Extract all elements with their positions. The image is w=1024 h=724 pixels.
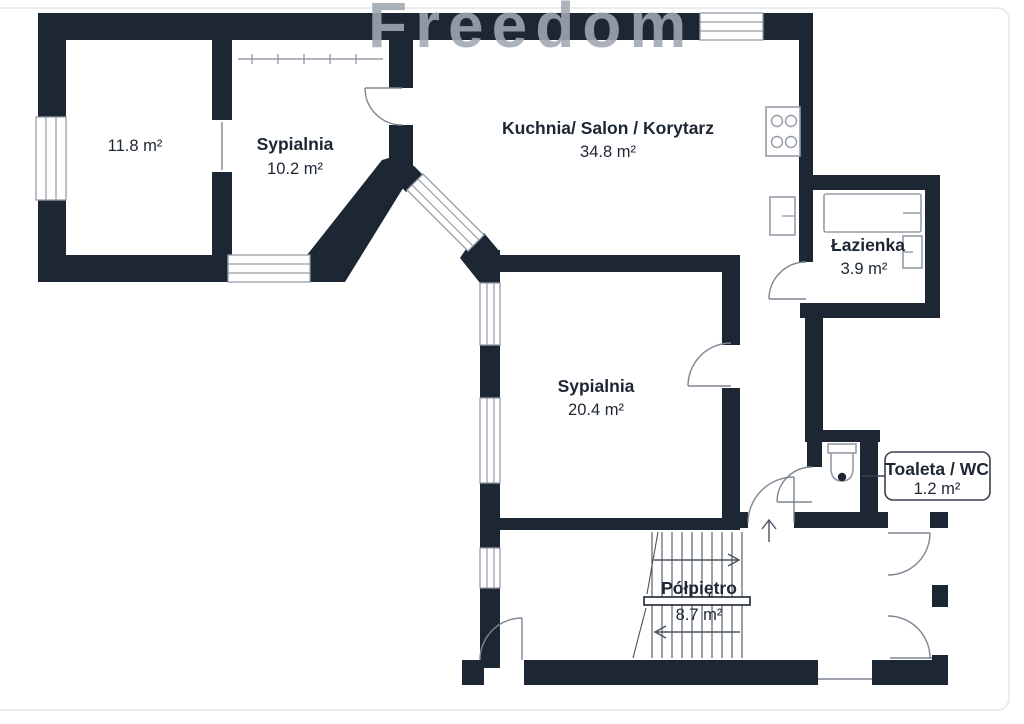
label-bathroom-name: Łazienka xyxy=(831,235,905,255)
wall-bedroom-big-left-c xyxy=(480,483,500,548)
wall-room-divider-top xyxy=(212,40,232,120)
toilet-icon xyxy=(828,444,856,481)
kitchen-sink-icon xyxy=(770,197,795,235)
label-kitchen-name: Kuchnia/ Salon / Korytarz xyxy=(502,118,714,138)
window-left xyxy=(36,117,66,200)
wall-wc-left xyxy=(807,442,822,467)
door-bathroom xyxy=(769,262,806,299)
bathtub-icon xyxy=(824,194,921,232)
window-diagonal xyxy=(407,174,484,251)
window-bedroom-big-1 xyxy=(480,283,500,345)
wall-wc-top xyxy=(807,430,880,442)
door-bedroom-small xyxy=(365,88,402,125)
wall-landing-top-b xyxy=(794,512,888,528)
label-room-left-area: 11.8 m² xyxy=(108,137,163,155)
door-neighbor-bottom xyxy=(888,616,932,658)
wall-bathroom-top xyxy=(813,175,940,190)
label-toilet-name: Toaleta / WC xyxy=(885,459,989,479)
wall-bathroom-right xyxy=(925,190,940,318)
door-neighbor-top xyxy=(888,533,930,575)
wall-bathroom-bottom xyxy=(800,303,940,318)
closet-line xyxy=(238,54,383,64)
wall-bathroom-left xyxy=(799,185,813,262)
label-bathroom-area: 3.9 m² xyxy=(841,260,888,278)
window-bottom-left xyxy=(228,255,310,282)
window-bedroom-big-2 xyxy=(480,398,500,483)
wall-bedroom-big-right-bottom xyxy=(722,388,740,530)
wall-bedroom-big-left-b xyxy=(480,345,500,398)
wall-bedroom-big-top xyxy=(482,255,740,272)
label-half-landing-area: 8.7 m² xyxy=(676,606,723,624)
window-kitchen-top xyxy=(700,13,763,40)
wall-wc-right xyxy=(860,442,878,512)
toilet-callout: Toaleta / WC 1.2 m² xyxy=(862,452,990,500)
label-bedroom-small-area: 10.2 m² xyxy=(267,160,323,178)
sink-icon xyxy=(903,236,922,268)
label-bedroom-small-name: Sypialnia xyxy=(257,134,334,154)
wall-kitchen-right xyxy=(799,40,813,185)
wall-room-divider-bottom xyxy=(212,172,232,255)
wall-right-mid xyxy=(932,585,948,607)
wall-bedroom-big-bottom xyxy=(482,518,740,530)
wall-corridor-right xyxy=(805,318,823,442)
label-kitchen-area: 34.8 m² xyxy=(580,143,636,161)
wall-landing-top-a xyxy=(740,512,748,528)
watermark-text: Freedom xyxy=(368,0,694,61)
stove-icon xyxy=(766,107,800,156)
page-border xyxy=(0,8,1009,710)
stair-handrail xyxy=(644,597,750,605)
direction-up-arrow-icon xyxy=(762,520,776,542)
door-bedroom-big xyxy=(688,343,731,386)
wall-bedroom-big-right-top xyxy=(722,270,740,345)
label-bedroom-big-name: Sypialnia xyxy=(558,376,635,396)
stairs-down-arrow-icon xyxy=(655,626,740,638)
wall-landing-top-c xyxy=(930,512,948,528)
wall-bottom-a xyxy=(462,660,484,685)
label-toilet-area: 1.2 m² xyxy=(914,480,961,498)
floor-plan-page: Freedom 11.8 m² Sypialnia 10.2 m² Kuchni… xyxy=(0,0,1024,724)
stairs-up-arrow-icon xyxy=(654,554,739,566)
wall-bottom-c xyxy=(872,660,948,685)
label-bedroom-big-area: 20.4 m² xyxy=(568,401,624,419)
door-corridor-landing xyxy=(748,477,794,523)
floor-plan: Freedom 11.8 m² Sypialnia 10.2 m² Kuchni… xyxy=(0,0,1024,724)
wall-bedroom-big-left-d xyxy=(480,588,500,668)
windows xyxy=(36,13,763,588)
wall-top-right-corner xyxy=(763,13,813,40)
window-landing-left xyxy=(480,548,500,588)
wall-bottom-b xyxy=(524,660,818,685)
label-half-landing-name: Półpiętro xyxy=(661,578,737,598)
